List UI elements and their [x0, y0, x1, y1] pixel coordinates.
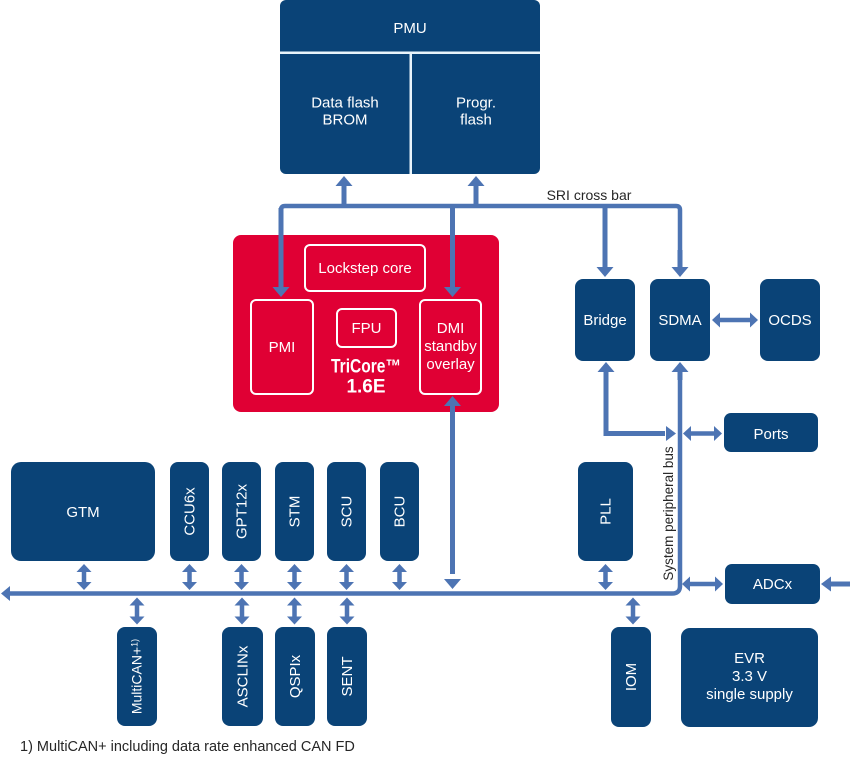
- svg-text:PLL: PLL: [598, 498, 615, 525]
- svg-text:DMI: DMI: [437, 320, 465, 337]
- svg-text:SENT: SENT: [339, 656, 356, 696]
- svg-text:BCU: BCU: [392, 496, 409, 528]
- svg-text:SRI cross bar: SRI cross bar: [547, 187, 632, 203]
- svg-text:1.6E: 1.6E: [347, 377, 386, 398]
- svg-text:QSPIx: QSPIx: [287, 654, 304, 698]
- svg-text:GPT12x: GPT12x: [234, 483, 251, 539]
- svg-text:PMI: PMI: [269, 339, 296, 356]
- svg-text:Progr.: Progr.: [456, 95, 496, 112]
- svg-text:ASCLINx: ASCLINx: [235, 645, 252, 707]
- svg-text:standby: standby: [424, 338, 477, 355]
- svg-text:Lockstep core: Lockstep core: [318, 260, 411, 277]
- svg-text:STM: STM: [287, 496, 304, 528]
- svg-text:Data flash: Data flash: [311, 95, 379, 112]
- svg-text:1) MultiCAN+ including data ra: 1) MultiCAN+ including data rate enhance…: [20, 739, 355, 755]
- svg-text:System peripheral bus: System peripheral bus: [661, 446, 676, 581]
- svg-text:IOM: IOM: [623, 663, 640, 691]
- svg-text:CCU6x: CCU6x: [182, 487, 199, 536]
- svg-text:ADCx: ADCx: [753, 576, 793, 593]
- svg-text:BROM: BROM: [323, 112, 368, 129]
- svg-text:MultiCAN+1): MultiCAN+1): [129, 639, 145, 714]
- svg-text:SDMA: SDMA: [658, 312, 701, 329]
- svg-text:SCU: SCU: [339, 496, 356, 528]
- svg-text:FPU: FPU: [352, 320, 382, 337]
- svg-text:Ports: Ports: [753, 426, 788, 443]
- svg-text:Bridge: Bridge: [583, 312, 626, 329]
- svg-text:3.3 V: 3.3 V: [732, 668, 767, 685]
- svg-text:overlay: overlay: [426, 356, 475, 373]
- svg-text:TriCore™: TriCore™: [331, 357, 401, 378]
- svg-text:PMU: PMU: [393, 20, 426, 37]
- svg-text:GTM: GTM: [66, 504, 99, 521]
- svg-text:EVR: EVR: [734, 650, 765, 667]
- svg-text:flash: flash: [460, 112, 492, 129]
- svg-text:single supply: single supply: [706, 686, 793, 703]
- svg-text:OCDS: OCDS: [768, 312, 811, 329]
